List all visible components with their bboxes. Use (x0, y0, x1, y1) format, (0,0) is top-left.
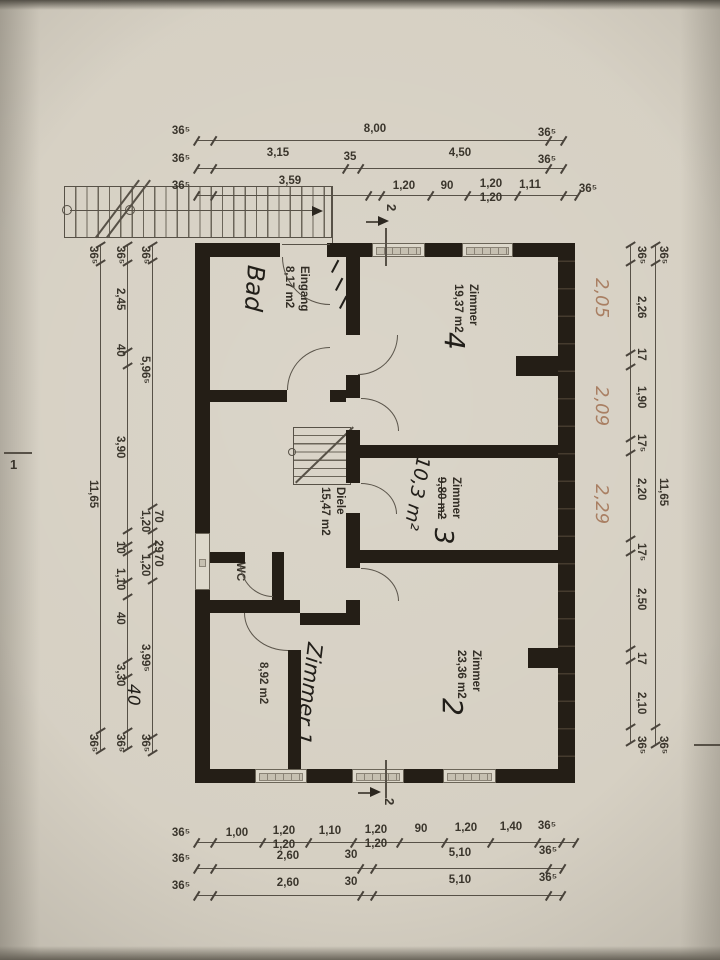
window (372, 243, 425, 257)
stairs-walk-line (70, 210, 316, 211)
section-marker-left: 1 (10, 458, 17, 471)
dim-label: 2,60 (277, 851, 299, 863)
room-area-zimmer1: 8,92 m2 (257, 662, 269, 704)
floor-plan-photo: Eingang 8,17 m2 Bad Zimmer 19,37 m2 4 Di… (0, 0, 720, 960)
section-marker-bottom: 2 (383, 798, 396, 805)
wall (327, 243, 372, 257)
dim-label: 36⁵ (538, 155, 556, 167)
dim-label: 36⁵ (172, 828, 190, 840)
dim-label: 1,20 (480, 179, 502, 191)
room-name: Zimmer (448, 477, 463, 519)
room-name: Zimmer (468, 650, 483, 699)
section-dash-left (4, 452, 32, 454)
dim-label: 40 (114, 612, 126, 625)
wall (528, 648, 558, 668)
dim-label: 36⁵ (635, 736, 647, 754)
dim-label: 1,10 (319, 826, 341, 838)
room-area: 23,36 m2 (453, 650, 468, 699)
dim-label: 36⁵ (657, 736, 669, 754)
dim-label: 1,20 (139, 554, 151, 576)
stairs-pole-ring (288, 448, 296, 456)
dim-label: 36⁵ (172, 181, 190, 193)
dim-label: 36⁵ (139, 734, 151, 752)
hand-strike-mark (331, 260, 339, 273)
section-dash-right (694, 744, 720, 746)
dim-label: 1,10 (114, 568, 126, 590)
section-line (385, 228, 387, 266)
door-threshold-line (282, 244, 330, 245)
dim-label: 2,20 (635, 478, 647, 500)
window (255, 769, 307, 783)
section-arrow-top (378, 216, 394, 226)
section-arrow-line (358, 792, 370, 794)
dim-label: 3,99⁵ (139, 644, 151, 672)
stairs-turn-ring (125, 205, 135, 215)
dim-label: 1,20 (393, 181, 415, 193)
wall (300, 613, 360, 625)
dim-label: 36⁵ (172, 126, 190, 138)
stairs-start-ring (62, 205, 72, 215)
dim-label: 8,00 (364, 124, 386, 136)
wall (346, 430, 360, 483)
dim-label: 1,11 (519, 180, 541, 192)
dim-label: 11,65 (87, 480, 99, 508)
dim-label: 5,10 (449, 848, 471, 860)
hand-strike-mark (335, 278, 343, 291)
room-label-zimmer2: Zimmer 23,36 m2 (453, 650, 483, 699)
dimension-line (152, 244, 153, 752)
dim-label: 17 (635, 652, 647, 665)
wall (558, 243, 575, 783)
handwritten-number-3: 3 (430, 528, 456, 545)
dim-label: 1,20 (273, 826, 295, 838)
section-line (385, 760, 387, 798)
dim-label: 3,90 (114, 436, 126, 458)
dim-label: 36⁵ (657, 246, 669, 264)
dim-label: 36⁵ (114, 246, 126, 264)
dim-label: 17⁵ (635, 543, 647, 561)
dim-label: 36⁵ (635, 246, 647, 264)
dim-label: 2,60 (277, 878, 299, 890)
dim-label: 35 (344, 152, 357, 164)
handwritten-area-zimmer3: 10,3 m² (400, 455, 432, 532)
dim-label: 2,09 (592, 386, 610, 426)
room-label-zimmer3: Zimmer 9,80 m2 (433, 477, 463, 519)
wall (346, 375, 360, 398)
room-label-zimmer4: Zimmer 19,37 m2 (450, 284, 480, 333)
dimension-line (196, 140, 563, 141)
dim-label: 1,90 (635, 386, 647, 408)
section-arrow-bottom (370, 787, 386, 797)
room-area: 19,37 m2 (450, 284, 465, 333)
dimension-line (127, 244, 128, 748)
dim-label: 36⁵ (172, 881, 190, 893)
dimension-line (196, 895, 562, 896)
dim-label: 11,65 (657, 478, 669, 506)
stairs-direction-arrow (312, 206, 328, 216)
dim-label: 1,40 (500, 822, 522, 834)
dim-label: 36⁵ (538, 128, 556, 140)
wall (360, 445, 558, 458)
room-name: Zimmer (465, 284, 480, 333)
window (443, 769, 496, 783)
dim-label: 90 (441, 181, 454, 193)
dim-label: 2,29 (592, 484, 610, 524)
dim-label: 2,50 (635, 588, 647, 610)
dim-label: 1,20 (480, 193, 502, 205)
wall (210, 390, 287, 402)
door-arc (361, 398, 399, 431)
wall (516, 356, 558, 376)
wall (210, 600, 300, 613)
dim-label: 3,15 (267, 148, 289, 160)
dim-label: 17⁵ (635, 434, 647, 452)
wall (346, 257, 360, 335)
wall (404, 769, 443, 783)
dim-label: 10 (114, 541, 126, 554)
wall (210, 552, 245, 563)
door-arc (358, 335, 398, 375)
dim-label: 40 (124, 684, 141, 706)
dim-label: 36⁵ (538, 821, 556, 833)
wall (195, 590, 210, 783)
section-marker-top: 2 (385, 204, 398, 211)
wall (288, 650, 301, 769)
dim-label: 2,45 (114, 288, 126, 310)
dim-label: 2,26 (635, 296, 647, 318)
wall (307, 769, 352, 783)
dim-label: 40 (114, 344, 126, 357)
dim-label: 36⁵ (87, 246, 99, 264)
dim-label: 1,20 (139, 510, 151, 532)
dimension-line (100, 244, 101, 750)
section-arrow-line (366, 221, 378, 223)
dim-label: 36⁵ (579, 184, 597, 196)
wall (346, 513, 360, 568)
room-label-diele: Diele 15,47 m2 (317, 487, 347, 536)
dim-label: 30 (345, 877, 358, 889)
dimension-line (196, 868, 562, 869)
handwritten-number-4: 4 (440, 332, 468, 350)
window (195, 533, 210, 590)
dim-label: 1,00 (226, 828, 248, 840)
dim-label: 36⁵ (172, 854, 190, 866)
wall (330, 390, 346, 402)
wall (360, 550, 558, 563)
dim-label: 36⁵ (539, 846, 557, 858)
room-name: Diele (332, 487, 347, 536)
dim-label: 2,05 (592, 278, 610, 318)
room-area: 15,47 m2 (317, 487, 332, 536)
dim-label: 70 (152, 554, 164, 567)
room-area-struck: 9,80 m2 (433, 477, 448, 519)
dim-label: 1,20 (365, 825, 387, 837)
door-arc (240, 563, 273, 597)
door-arc (361, 483, 397, 514)
dimension-line (196, 168, 563, 169)
dim-label: 2,10 (635, 692, 647, 714)
dim-label: 36⁵ (172, 154, 190, 166)
dim-label: 90 (415, 824, 428, 836)
handwritten-room-name-bad: Bad (241, 264, 268, 312)
photo-vignette (0, 0, 720, 960)
door-arc (244, 613, 288, 651)
handwritten-number-2: 2 (438, 698, 466, 716)
wall (425, 243, 464, 257)
dim-label: 4,50 (449, 148, 471, 160)
window (352, 769, 404, 783)
dimension-line (196, 195, 577, 196)
wall (195, 243, 210, 533)
dim-label: 1,20 (365, 839, 387, 851)
dim-label: 17 (635, 348, 647, 361)
dim-label: 5,10 (449, 875, 471, 887)
dim-label: 36⁵ (87, 734, 99, 752)
dim-label: 36⁵ (139, 246, 151, 264)
dim-label: 29 (152, 540, 164, 553)
dim-label: 30 (345, 850, 358, 862)
dim-label: 5,96⁵ (139, 356, 151, 384)
dimension-line (630, 244, 631, 742)
window (462, 243, 513, 257)
dim-label: 36⁵ (539, 873, 557, 885)
door-arc (361, 568, 399, 601)
dim-label: 36⁵ (114, 734, 126, 752)
dim-label: 70 (152, 510, 164, 523)
door-arc (287, 347, 330, 390)
dim-label: 3,59 (279, 176, 301, 188)
dim-label: 1,20 (455, 823, 477, 835)
